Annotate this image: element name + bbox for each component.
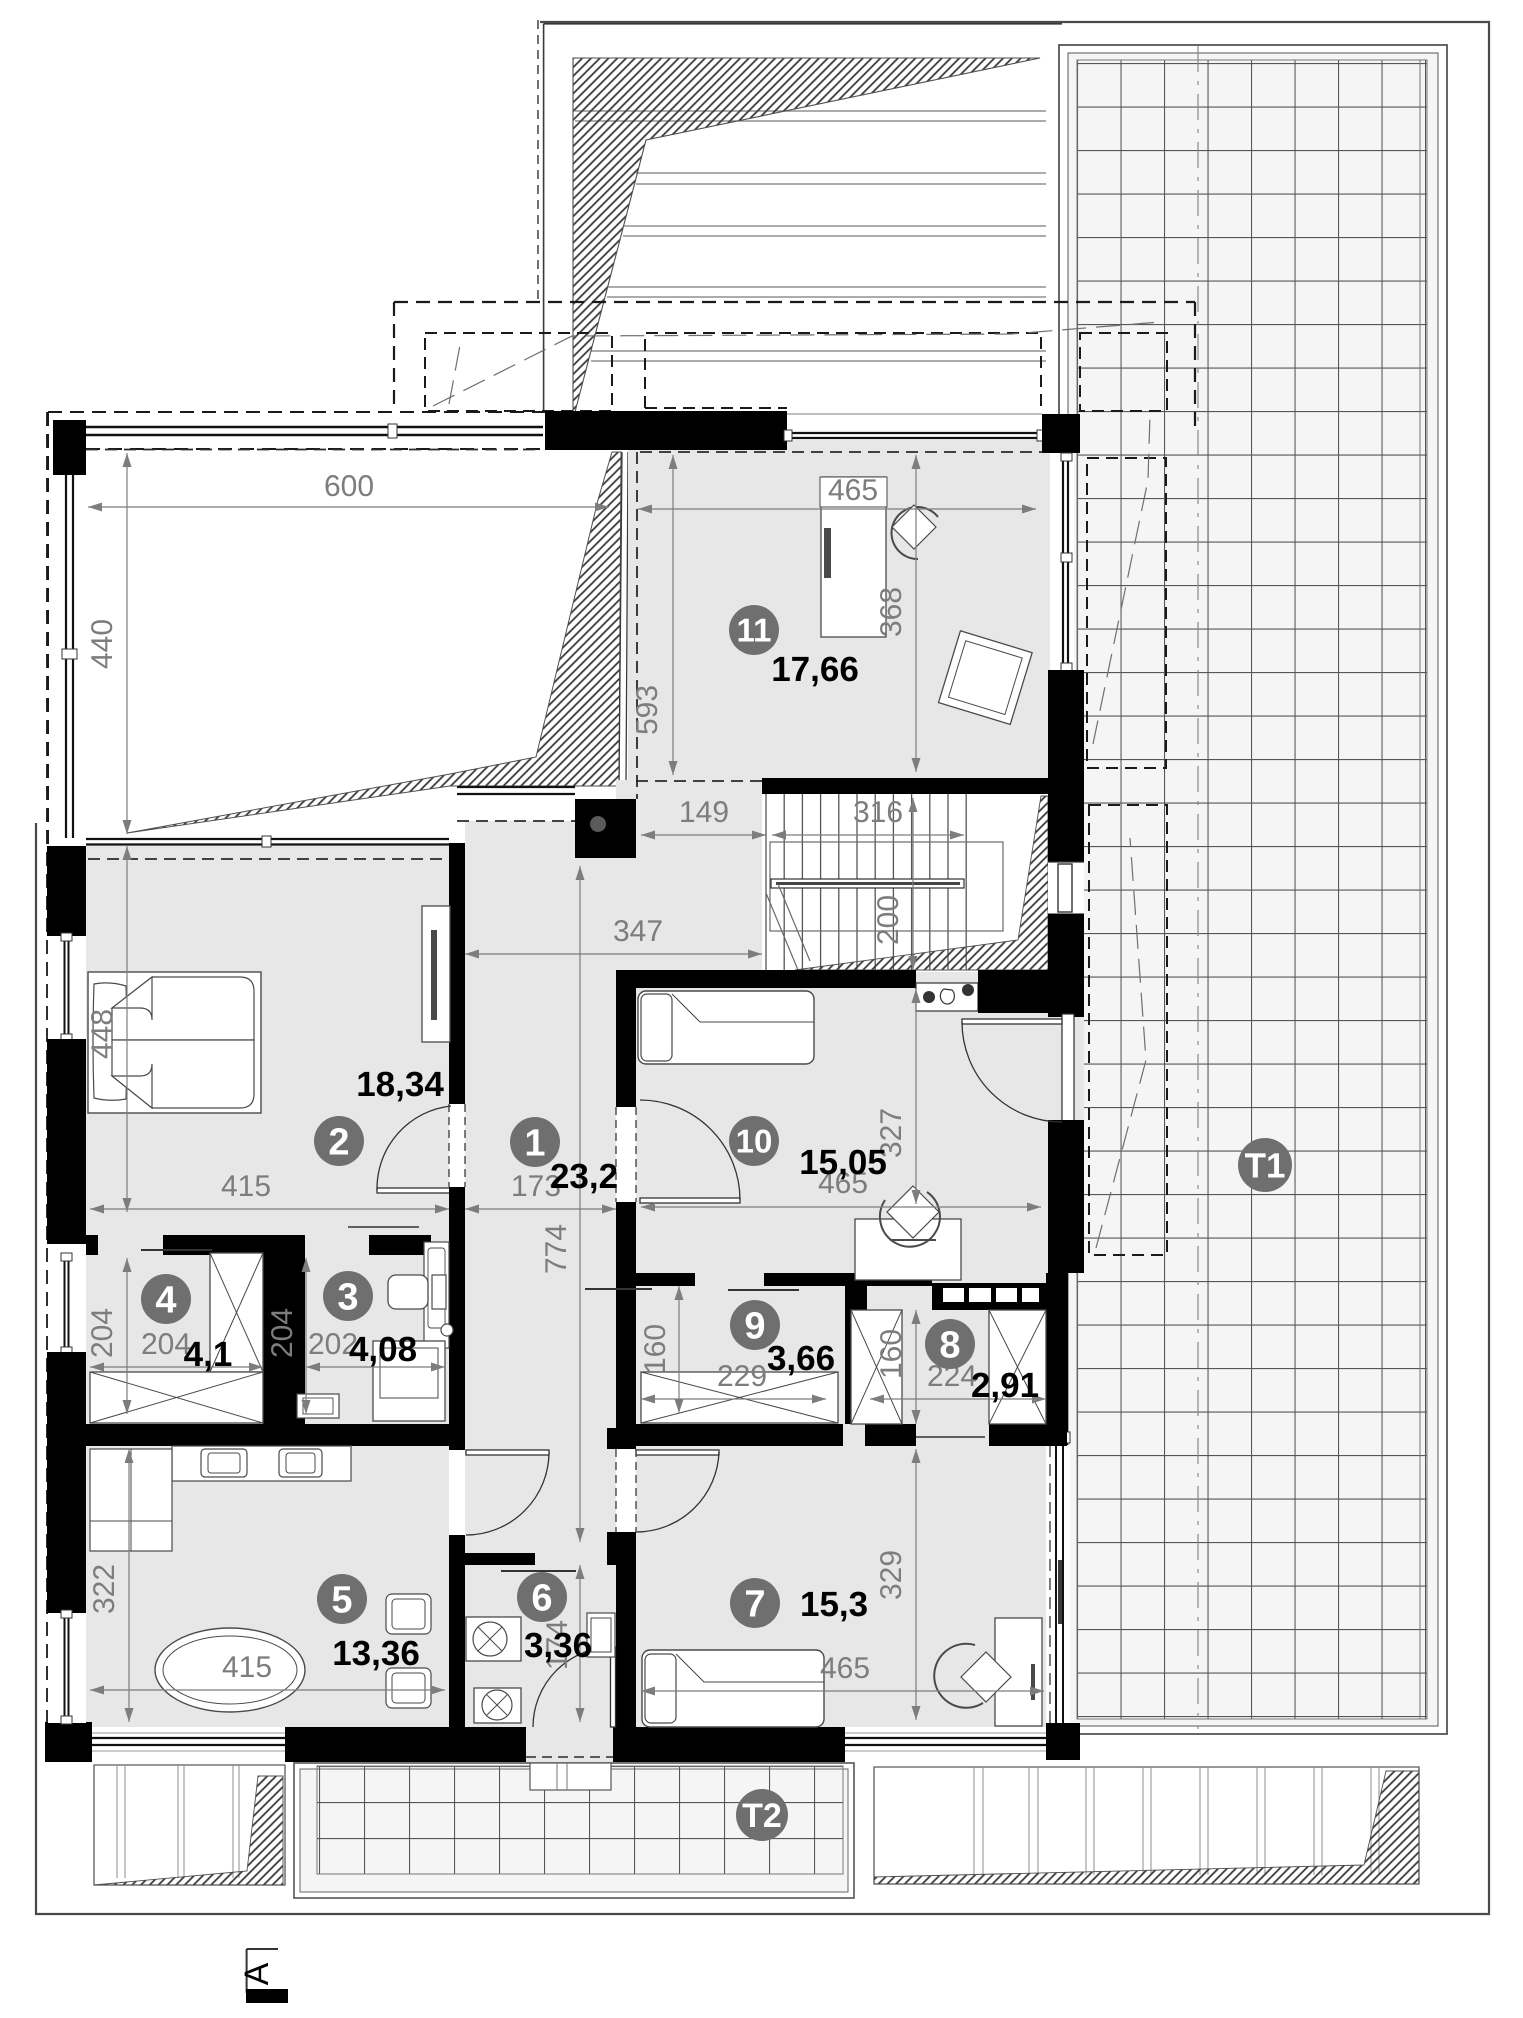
svg-text:448: 448 — [86, 1009, 119, 1059]
svg-text:593: 593 — [631, 685, 664, 735]
svg-text:774: 774 — [540, 1224, 573, 1274]
svg-text:3,66: 3,66 — [767, 1339, 835, 1378]
svg-text:600: 600 — [324, 470, 374, 503]
svg-text:415: 415 — [221, 1170, 271, 1203]
svg-text:13,36: 13,36 — [332, 1634, 420, 1673]
svg-text:4,08: 4,08 — [349, 1330, 417, 1369]
svg-text:322: 322 — [88, 1564, 121, 1614]
svg-text:6: 6 — [531, 1577, 552, 1619]
svg-text:23,2: 23,2 — [550, 1157, 618, 1196]
svg-text:15,3: 15,3 — [800, 1585, 868, 1624]
svg-text:10: 10 — [736, 1123, 773, 1160]
svg-text:7: 7 — [744, 1583, 765, 1625]
svg-text:4: 4 — [155, 1279, 176, 1321]
svg-text:415: 415 — [222, 1651, 272, 1684]
svg-text:160: 160 — [639, 1324, 672, 1374]
svg-text:17,66: 17,66 — [771, 650, 859, 689]
svg-text:347: 347 — [613, 915, 663, 948]
svg-text:229: 229 — [717, 1360, 767, 1393]
svg-text:204: 204 — [86, 1308, 119, 1358]
svg-text:200: 200 — [872, 895, 905, 945]
svg-text:3,36: 3,36 — [524, 1626, 592, 1665]
svg-text:440: 440 — [86, 619, 119, 669]
svg-text:149: 149 — [679, 796, 729, 829]
svg-text:A: A — [238, 1962, 276, 1985]
svg-text:15,05: 15,05 — [799, 1143, 887, 1182]
svg-text:18,34: 18,34 — [356, 1065, 444, 1104]
svg-text:2: 2 — [328, 1121, 349, 1163]
svg-text:5: 5 — [331, 1579, 352, 1621]
svg-text:368: 368 — [875, 587, 908, 637]
svg-text:465: 465 — [828, 474, 878, 507]
svg-text:11: 11 — [737, 612, 772, 649]
svg-text:9: 9 — [744, 1305, 765, 1347]
svg-text:204: 204 — [266, 1308, 299, 1358]
svg-text:3: 3 — [337, 1276, 358, 1318]
svg-text:4,1: 4,1 — [184, 1335, 233, 1374]
svg-text:T2: T2 — [742, 1797, 782, 1835]
svg-text:1: 1 — [524, 1122, 545, 1164]
svg-text:8: 8 — [939, 1324, 960, 1366]
svg-text:2,91: 2,91 — [971, 1366, 1039, 1405]
svg-text:329: 329 — [875, 1550, 908, 1600]
svg-text:T1: T1 — [1245, 1146, 1286, 1185]
svg-text:316: 316 — [853, 796, 903, 829]
svg-text:160: 160 — [875, 1329, 908, 1379]
svg-text:465: 465 — [820, 1652, 870, 1685]
